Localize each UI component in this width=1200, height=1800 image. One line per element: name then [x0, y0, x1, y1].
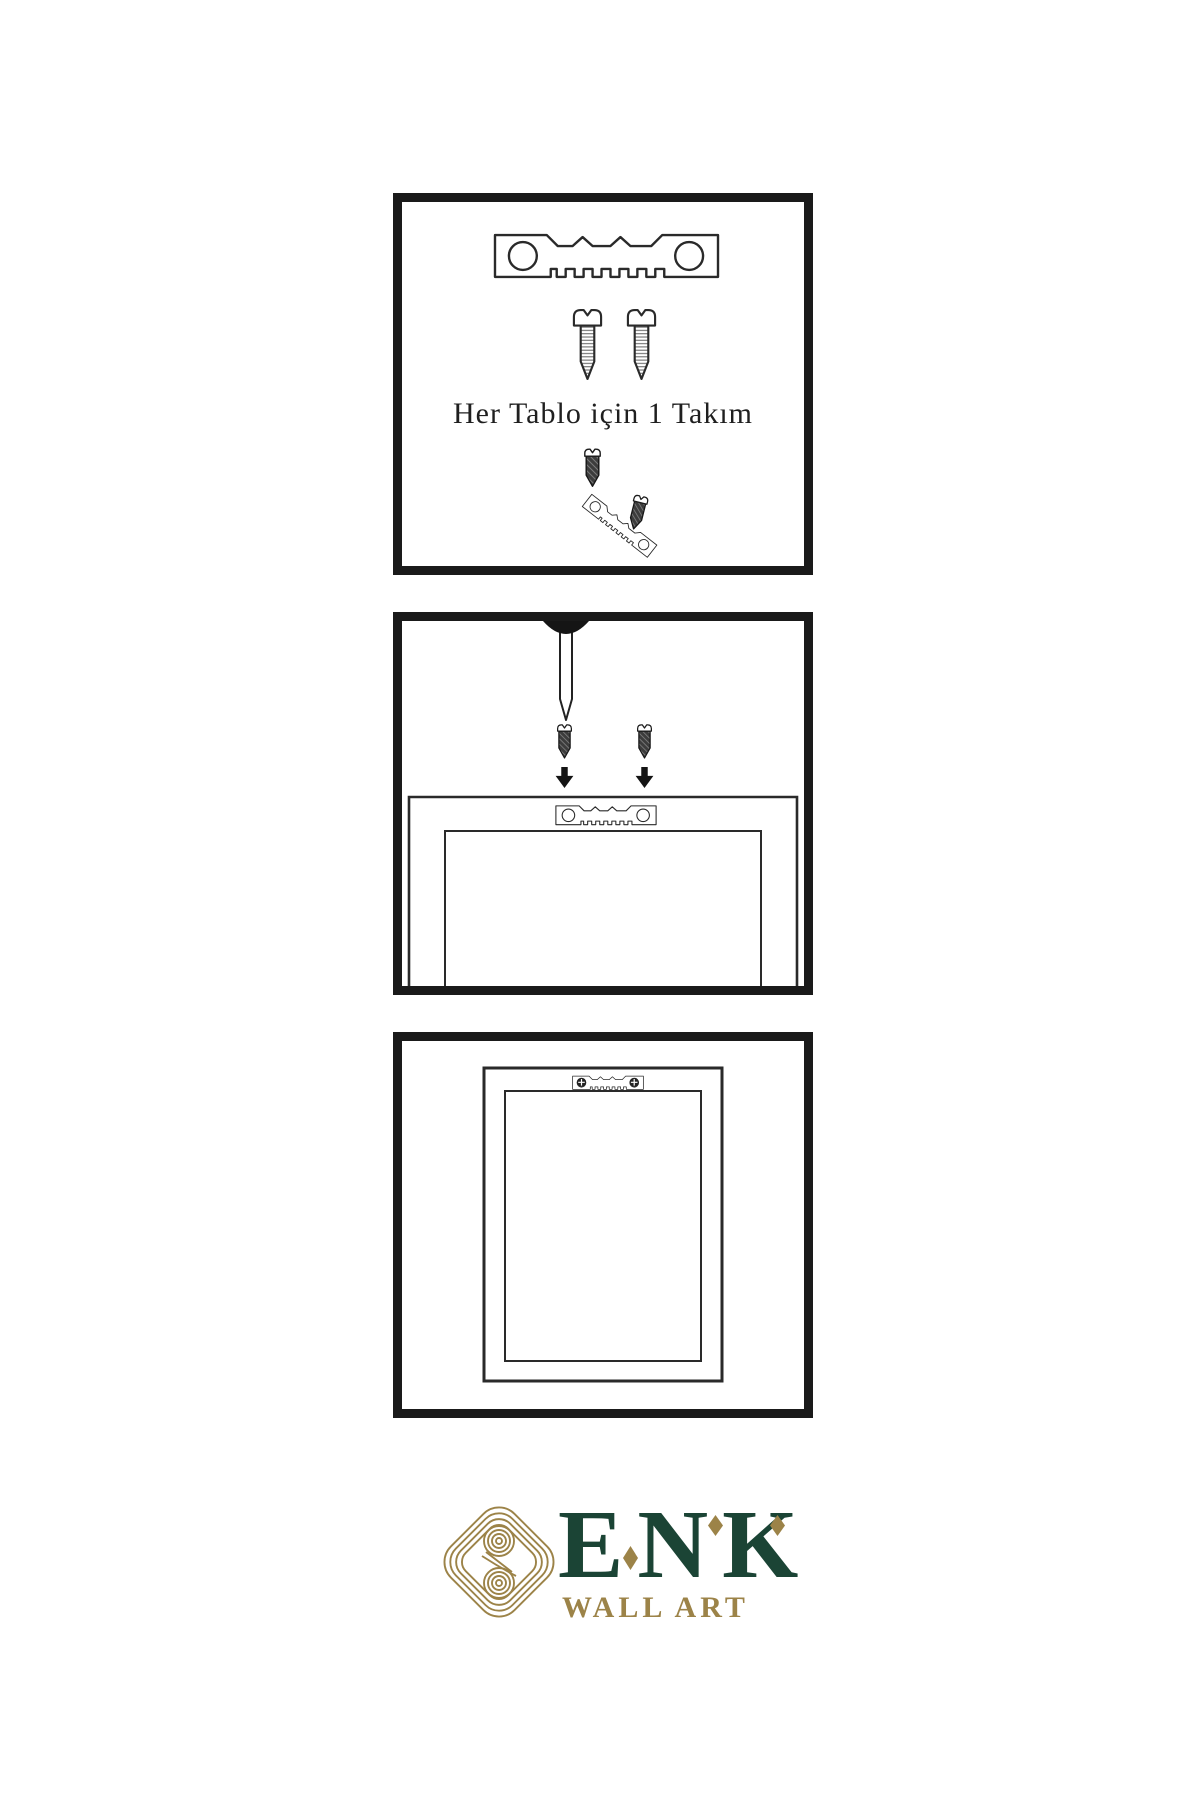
frame-outer-edge	[409, 797, 797, 986]
brand-name: ENK	[558, 1496, 812, 1594]
hung-frame-illustration	[402, 1041, 804, 1409]
knot-icon	[435, 1496, 563, 1628]
instruction-sheet: Her Tablo için 1 Takım	[0, 0, 1200, 1800]
kit-caption: Her Tablo için 1 Takım	[402, 396, 804, 432]
screw-icon	[574, 310, 601, 379]
step-1-hardware-kit-panel: Her Tablo için 1 Takım	[393, 193, 813, 575]
screw-driving-icon	[585, 449, 600, 486]
frame-outer-edge	[484, 1068, 722, 1381]
screw-icon	[628, 310, 655, 379]
screw-icon	[558, 725, 572, 758]
diamond-accent-icon	[708, 1515, 723, 1536]
nail-head	[543, 621, 589, 634]
mounted-screw-icon	[630, 1078, 639, 1087]
screw-icon	[638, 725, 652, 758]
down-arrow-icon	[556, 767, 574, 788]
mounting-illustration	[402, 621, 804, 986]
frame-inner-edge	[445, 831, 761, 986]
frame-hanger-icon	[556, 806, 656, 825]
diamond-accent-icon	[770, 1515, 785, 1536]
sawtooth-hanger-icon	[495, 235, 718, 277]
screw-icon	[627, 495, 649, 531]
diamond-accent-icon	[623, 1546, 638, 1570]
step-2-mounting-panel	[393, 612, 813, 995]
step-3-hung-frame-panel	[393, 1032, 813, 1418]
down-arrow-icon	[636, 767, 654, 788]
frame-inner-edge	[505, 1091, 701, 1361]
hardware-kit-illustration	[402, 202, 804, 566]
mounted-screw-icon	[577, 1078, 586, 1087]
nail-icon	[560, 627, 572, 720]
brand-subtitle: WALL ART	[562, 1593, 749, 1623]
